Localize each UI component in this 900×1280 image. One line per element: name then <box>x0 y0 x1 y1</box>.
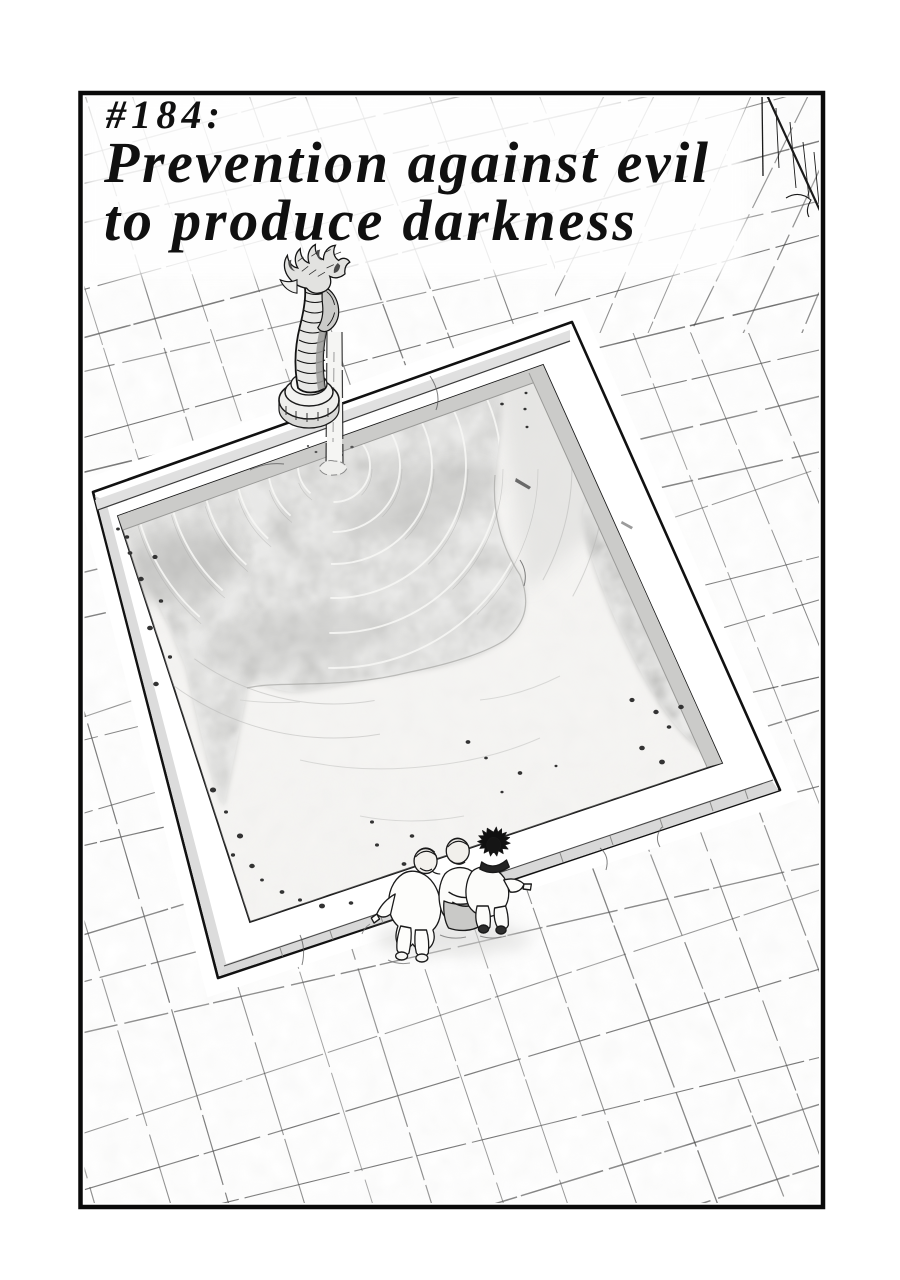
svg-text:to produce darkness: to produce darkness <box>104 188 635 253</box>
